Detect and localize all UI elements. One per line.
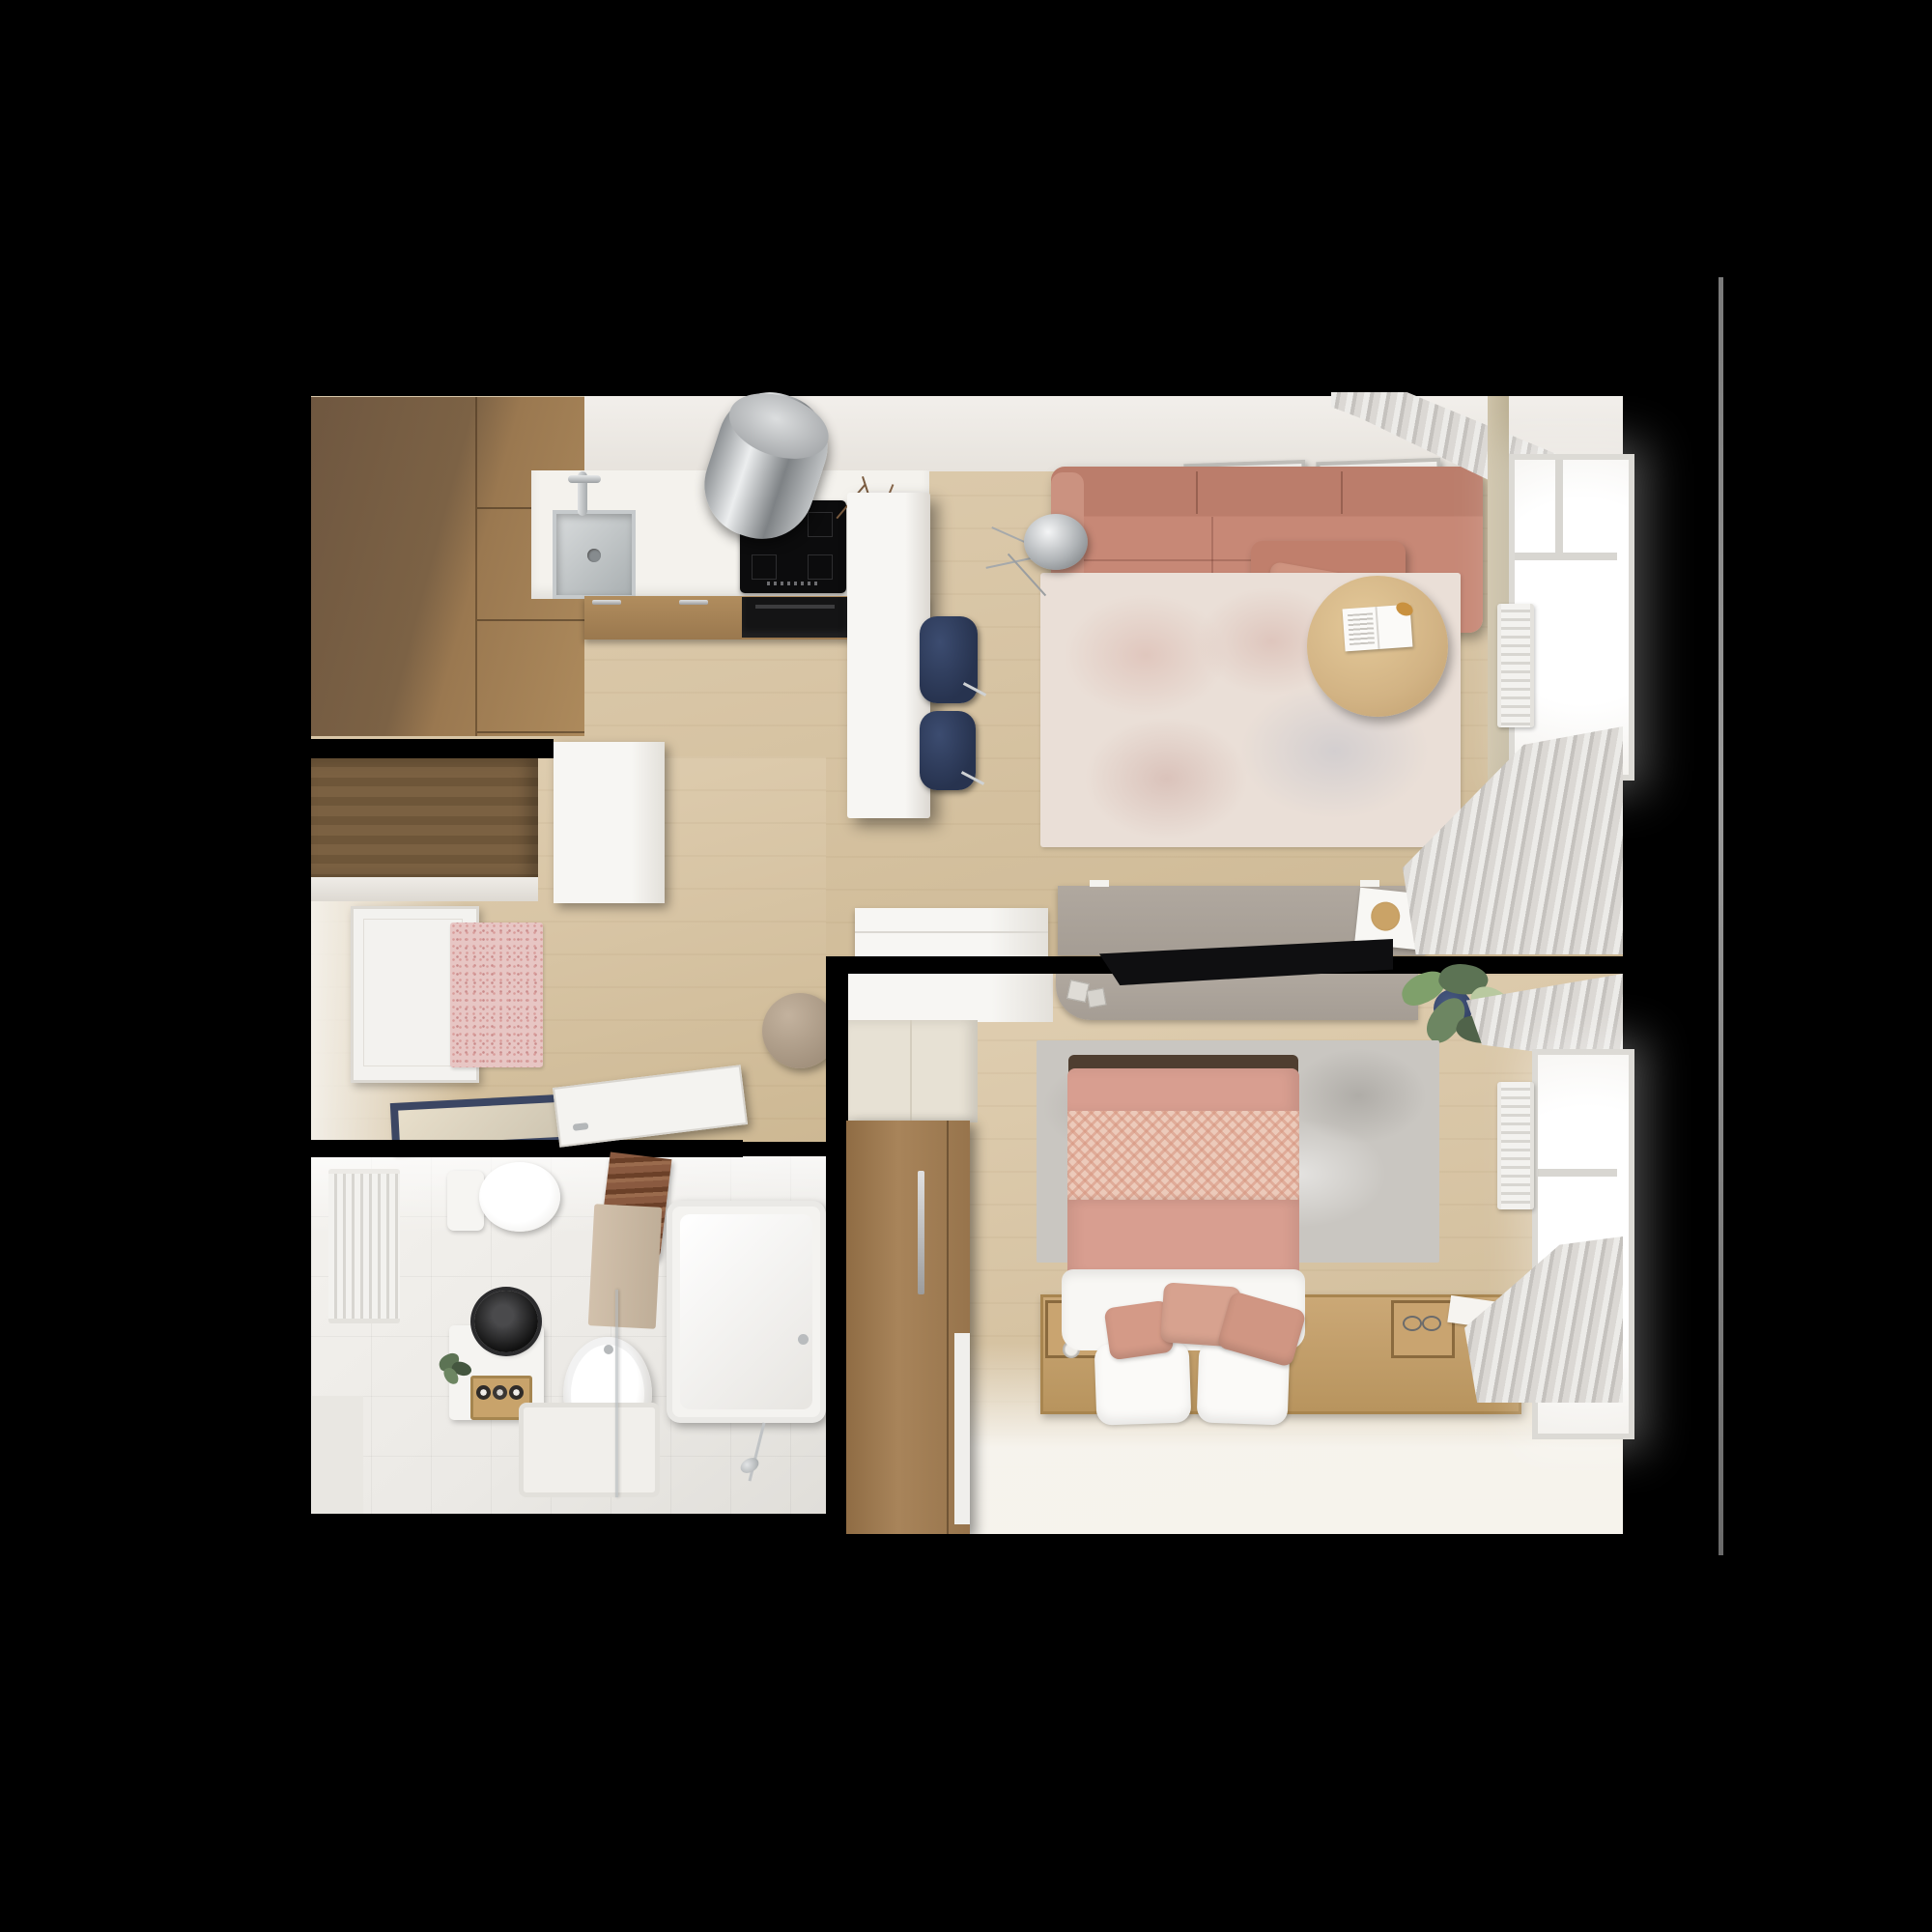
bar-stool [920,711,976,790]
magazine-text-lines [1348,612,1375,645]
sofa-back-seam [1341,471,1343,514]
wall-bracket [1360,880,1379,887]
glasses-icon [1403,1316,1422,1331]
window-mullion [1538,1169,1617,1177]
magazine-spine [1375,607,1379,649]
bed-herringbone-blanket [1067,1111,1299,1202]
exterior-wall-edge-line [1719,277,1723,1555]
faucet-spout-icon [568,475,601,483]
cabinet-handle [679,600,708,605]
oven-front [742,597,848,638]
bar-stool [920,616,978,703]
bed-duvet-bottom [1067,1200,1299,1275]
bathroom-radiator [328,1169,400,1323]
hanging-towel-beige [588,1204,662,1328]
bathroom-plant [435,1349,477,1391]
door-handle-icon [573,1122,589,1131]
sofa-back-seam [1196,471,1198,514]
rolled-towel-icon [493,1385,507,1400]
living-radiator [1497,604,1534,727]
shower-hose-icon [749,1423,766,1482]
cabinet-handle [592,600,621,605]
rolled-towel-icon [476,1385,491,1400]
black-round-basin [474,1291,538,1352]
sideboard-seam [855,931,1048,933]
wardrobe-handle [918,1171,924,1294]
bedroom-cream-closet [848,1020,978,1122]
wardrobe-door-seam [947,1121,949,1534]
wall-bracket [1090,880,1109,887]
island-counter [847,493,930,818]
hall-closet-shelf [311,877,538,901]
dice-icon [1087,988,1107,1009]
bedside-tray-box [1391,1300,1455,1358]
kitchen-sink [553,510,636,599]
living-sideboard [855,908,1048,956]
window-mullion [1515,553,1617,560]
wardrobe-open-door-sliver [954,1333,970,1524]
glasses-icon [1422,1316,1441,1331]
toilet-bowl [479,1162,560,1232]
hall-runner-rug [450,923,543,1067]
sink-drain [587,549,601,562]
floor-plan-render [0,0,1932,1932]
wardrobe [846,1121,970,1534]
bathtub [667,1201,826,1423]
oven-handle [755,605,835,609]
burner-icon [752,554,777,580]
book-coaster-icon [1370,900,1402,932]
window-mullion [1555,460,1563,553]
bathroom-corner-step [311,1396,363,1514]
window-wall-strip [1488,396,1509,802]
bathtub-drain-icon [798,1334,809,1345]
hood-cap [721,382,837,470]
hall-closet-top [311,758,538,879]
burner-icon [808,512,833,537]
coffee-table [1307,576,1448,717]
lamp-shade-icon [1024,514,1088,570]
tub-tap-icon [604,1345,613,1354]
bed-duvet-top [1067,1068,1299,1113]
floor-lamp [983,510,1090,603]
wall-hallway-bathroom [311,1140,743,1157]
tall-white-cabinet [554,742,665,903]
shower-glass-screen [615,1290,618,1497]
shower-tray [519,1403,660,1497]
wall-kitchen-hallway [311,739,554,758]
bedroom-desk-shelf [1056,974,1418,1020]
bedroom-radiator [1497,1082,1534,1209]
shower-set-icon [736,1420,779,1488]
closet-seam [910,1020,912,1122]
bedroom-top-shelf [848,974,1053,1022]
door-panel-line [363,919,463,1066]
burner-icon [808,554,833,580]
cooktop-controls [767,582,819,585]
bathtub-basin [680,1214,812,1409]
rolled-towel-icon [509,1385,524,1400]
